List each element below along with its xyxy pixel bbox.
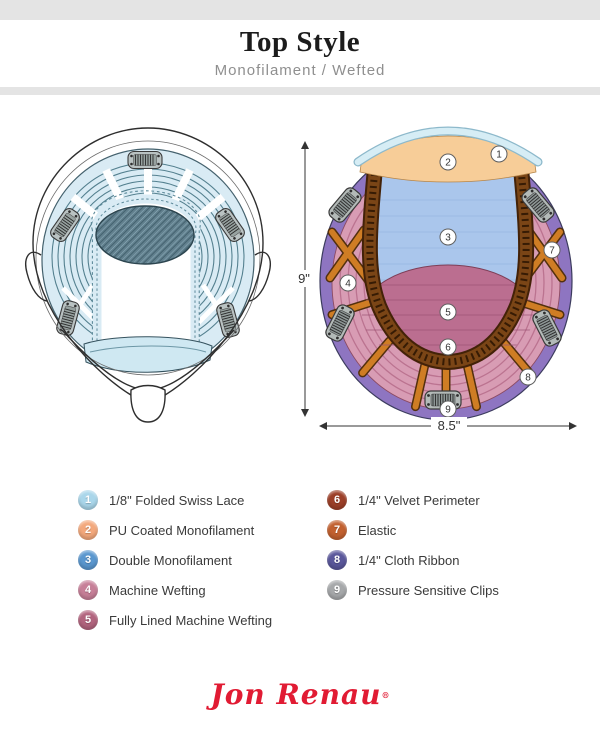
callout-5: 5 xyxy=(440,304,456,320)
callout-3: 3 xyxy=(440,229,456,245)
legend-dot-5: 5 xyxy=(78,610,98,630)
legend-dot-8: 8 xyxy=(327,550,347,570)
callout-1: 1 xyxy=(491,146,507,162)
callout-8: 8 xyxy=(520,369,536,385)
head-cap-line-diagram xyxy=(8,108,300,440)
legend-dot-9: 9 xyxy=(327,580,347,600)
svg-text:9: 9 xyxy=(445,405,451,416)
height-dimension: 9" xyxy=(293,141,317,417)
callout-9: 9 xyxy=(440,401,456,417)
legend-item-lined-wefting: 5 Fully Lined Machine Wefting xyxy=(78,605,272,635)
legend-item-swiss-lace: 1 1/8" Folded Swiss Lace xyxy=(78,485,272,515)
legend-label-7: Elastic xyxy=(358,523,396,538)
page: Top Style Monofilament / Wefted xyxy=(0,0,600,750)
legend-column-left: 1 1/8" Folded Swiss Lace 2 PU Coated Mon… xyxy=(78,485,272,635)
legend-label-5: Fully Lined Machine Wefting xyxy=(109,613,272,628)
svg-text:4: 4 xyxy=(345,279,351,290)
legend-dot-3: 3 xyxy=(78,550,98,570)
svg-text:8.5": 8.5" xyxy=(438,418,461,433)
callout-2: 2 xyxy=(440,154,456,170)
legend-label-4: Machine Wefting xyxy=(109,583,206,598)
legend-dot-1: 1 xyxy=(78,490,98,510)
legend-dot-6: 6 xyxy=(327,490,347,510)
svg-text:6: 6 xyxy=(445,343,451,354)
cap-construction-diagram: 1 2 3 4 5 6 7 8 9 9" 8.5" xyxy=(280,120,600,450)
callout-7: 7 xyxy=(544,242,560,258)
legend-item-pu-monofilament: 2 PU Coated Monofilament xyxy=(78,515,272,545)
legend-label-2: PU Coated Monofilament xyxy=(109,523,254,538)
legend-label-8: 1/4" Cloth Ribbon xyxy=(358,553,459,568)
brand-logo: Jon Renau® xyxy=(0,678,600,711)
header-divider-bar xyxy=(0,87,600,95)
top-area-lens xyxy=(96,206,194,264)
width-dimension: 8.5" xyxy=(319,417,577,434)
legend-item-velvet-perimeter: 6 1/4" Velvet Perimeter xyxy=(327,485,499,515)
legend-label-1: 1/8" Folded Swiss Lace xyxy=(109,493,244,508)
svg-text:3: 3 xyxy=(445,233,451,244)
svg-text:7: 7 xyxy=(549,246,555,257)
top-divider-bar xyxy=(0,0,600,20)
legend-dot-4: 4 xyxy=(78,580,98,600)
legend-column-right: 6 1/4" Velvet Perimeter 7 Elastic 8 1/4"… xyxy=(327,485,499,605)
legend-item-double-monofilament: 3 Double Monofilament xyxy=(78,545,272,575)
nose xyxy=(131,386,165,423)
legend-item-elastic: 7 Elastic xyxy=(327,515,499,545)
legend-label-9: Pressure Sensitive Clips xyxy=(358,583,499,598)
svg-text:9": 9" xyxy=(298,271,310,286)
page-title: Top Style xyxy=(0,26,600,59)
legend-item-machine-wefting: 4 Machine Wefting xyxy=(78,575,272,605)
legend-dot-7: 7 xyxy=(327,520,347,540)
callout-4: 4 xyxy=(340,275,356,291)
page-subtitle: Monofilament / Wefted xyxy=(0,62,600,79)
legend-label-3: Double Monofilament xyxy=(109,553,232,568)
legend-item-cloth-ribbon: 8 1/4" Cloth Ribbon xyxy=(327,545,499,575)
legend-item-pressure-clips: 9 Pressure Sensitive Clips xyxy=(327,575,499,605)
callout-6: 6 xyxy=(440,339,456,355)
nape-band xyxy=(84,337,212,373)
legend-label-6: 1/4" Velvet Perimeter xyxy=(358,493,480,508)
svg-text:1: 1 xyxy=(496,150,502,161)
brand-name: Jon Renau xyxy=(211,678,382,711)
registered-mark: ® xyxy=(381,690,389,700)
svg-text:5: 5 xyxy=(445,308,451,319)
legend-dot-2: 2 xyxy=(78,520,98,540)
svg-text:2: 2 xyxy=(445,158,451,169)
svg-text:8: 8 xyxy=(525,373,531,384)
